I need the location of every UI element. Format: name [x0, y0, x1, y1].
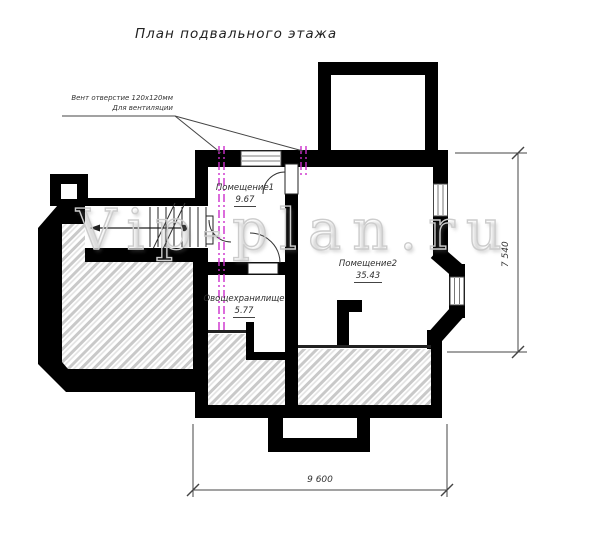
floor-plan-page: План подвального этажа Вент отверстие 12… [0, 0, 600, 542]
window-top [241, 151, 281, 166]
bottom-band [208, 322, 431, 405]
page-title: План подвального этажа [135, 27, 337, 43]
wall-bottom [195, 405, 442, 418]
chimney-stub [337, 300, 362, 347]
bottom-protrusion [268, 418, 370, 452]
room-label-2: Помещение2 35.43 [318, 260, 418, 283]
leader-lines [62, 116, 303, 153]
dim-label-width: 9 600 [290, 475, 350, 485]
room-3-area: 5.77 [233, 307, 256, 318]
top-protrusion [318, 62, 438, 164]
watermark: Vip-plan.ru [76, 198, 596, 263]
room-1-name: Помещение1 [195, 184, 295, 194]
dim-label-height: 7 540 [501, 232, 511, 276]
room-2-area: 35.43 [354, 272, 382, 283]
room-label-3: Овощехранилище 5.77 [194, 295, 294, 318]
vent-annotation-line1: Вент отверстие 120х120мм [55, 94, 173, 104]
room-3-name: Овощехранилище [194, 295, 294, 305]
room-1-area: 9.67 [234, 196, 257, 207]
vent-annotation: Вент отверстие 120х120мм Для вентиляции [55, 94, 173, 113]
window-bay [450, 277, 464, 305]
room-2-name: Помещение2 [318, 260, 418, 270]
room-label-1: Помещение1 9.67 [195, 184, 295, 207]
vent-annotation-line2: Для вентиляции [55, 104, 173, 114]
